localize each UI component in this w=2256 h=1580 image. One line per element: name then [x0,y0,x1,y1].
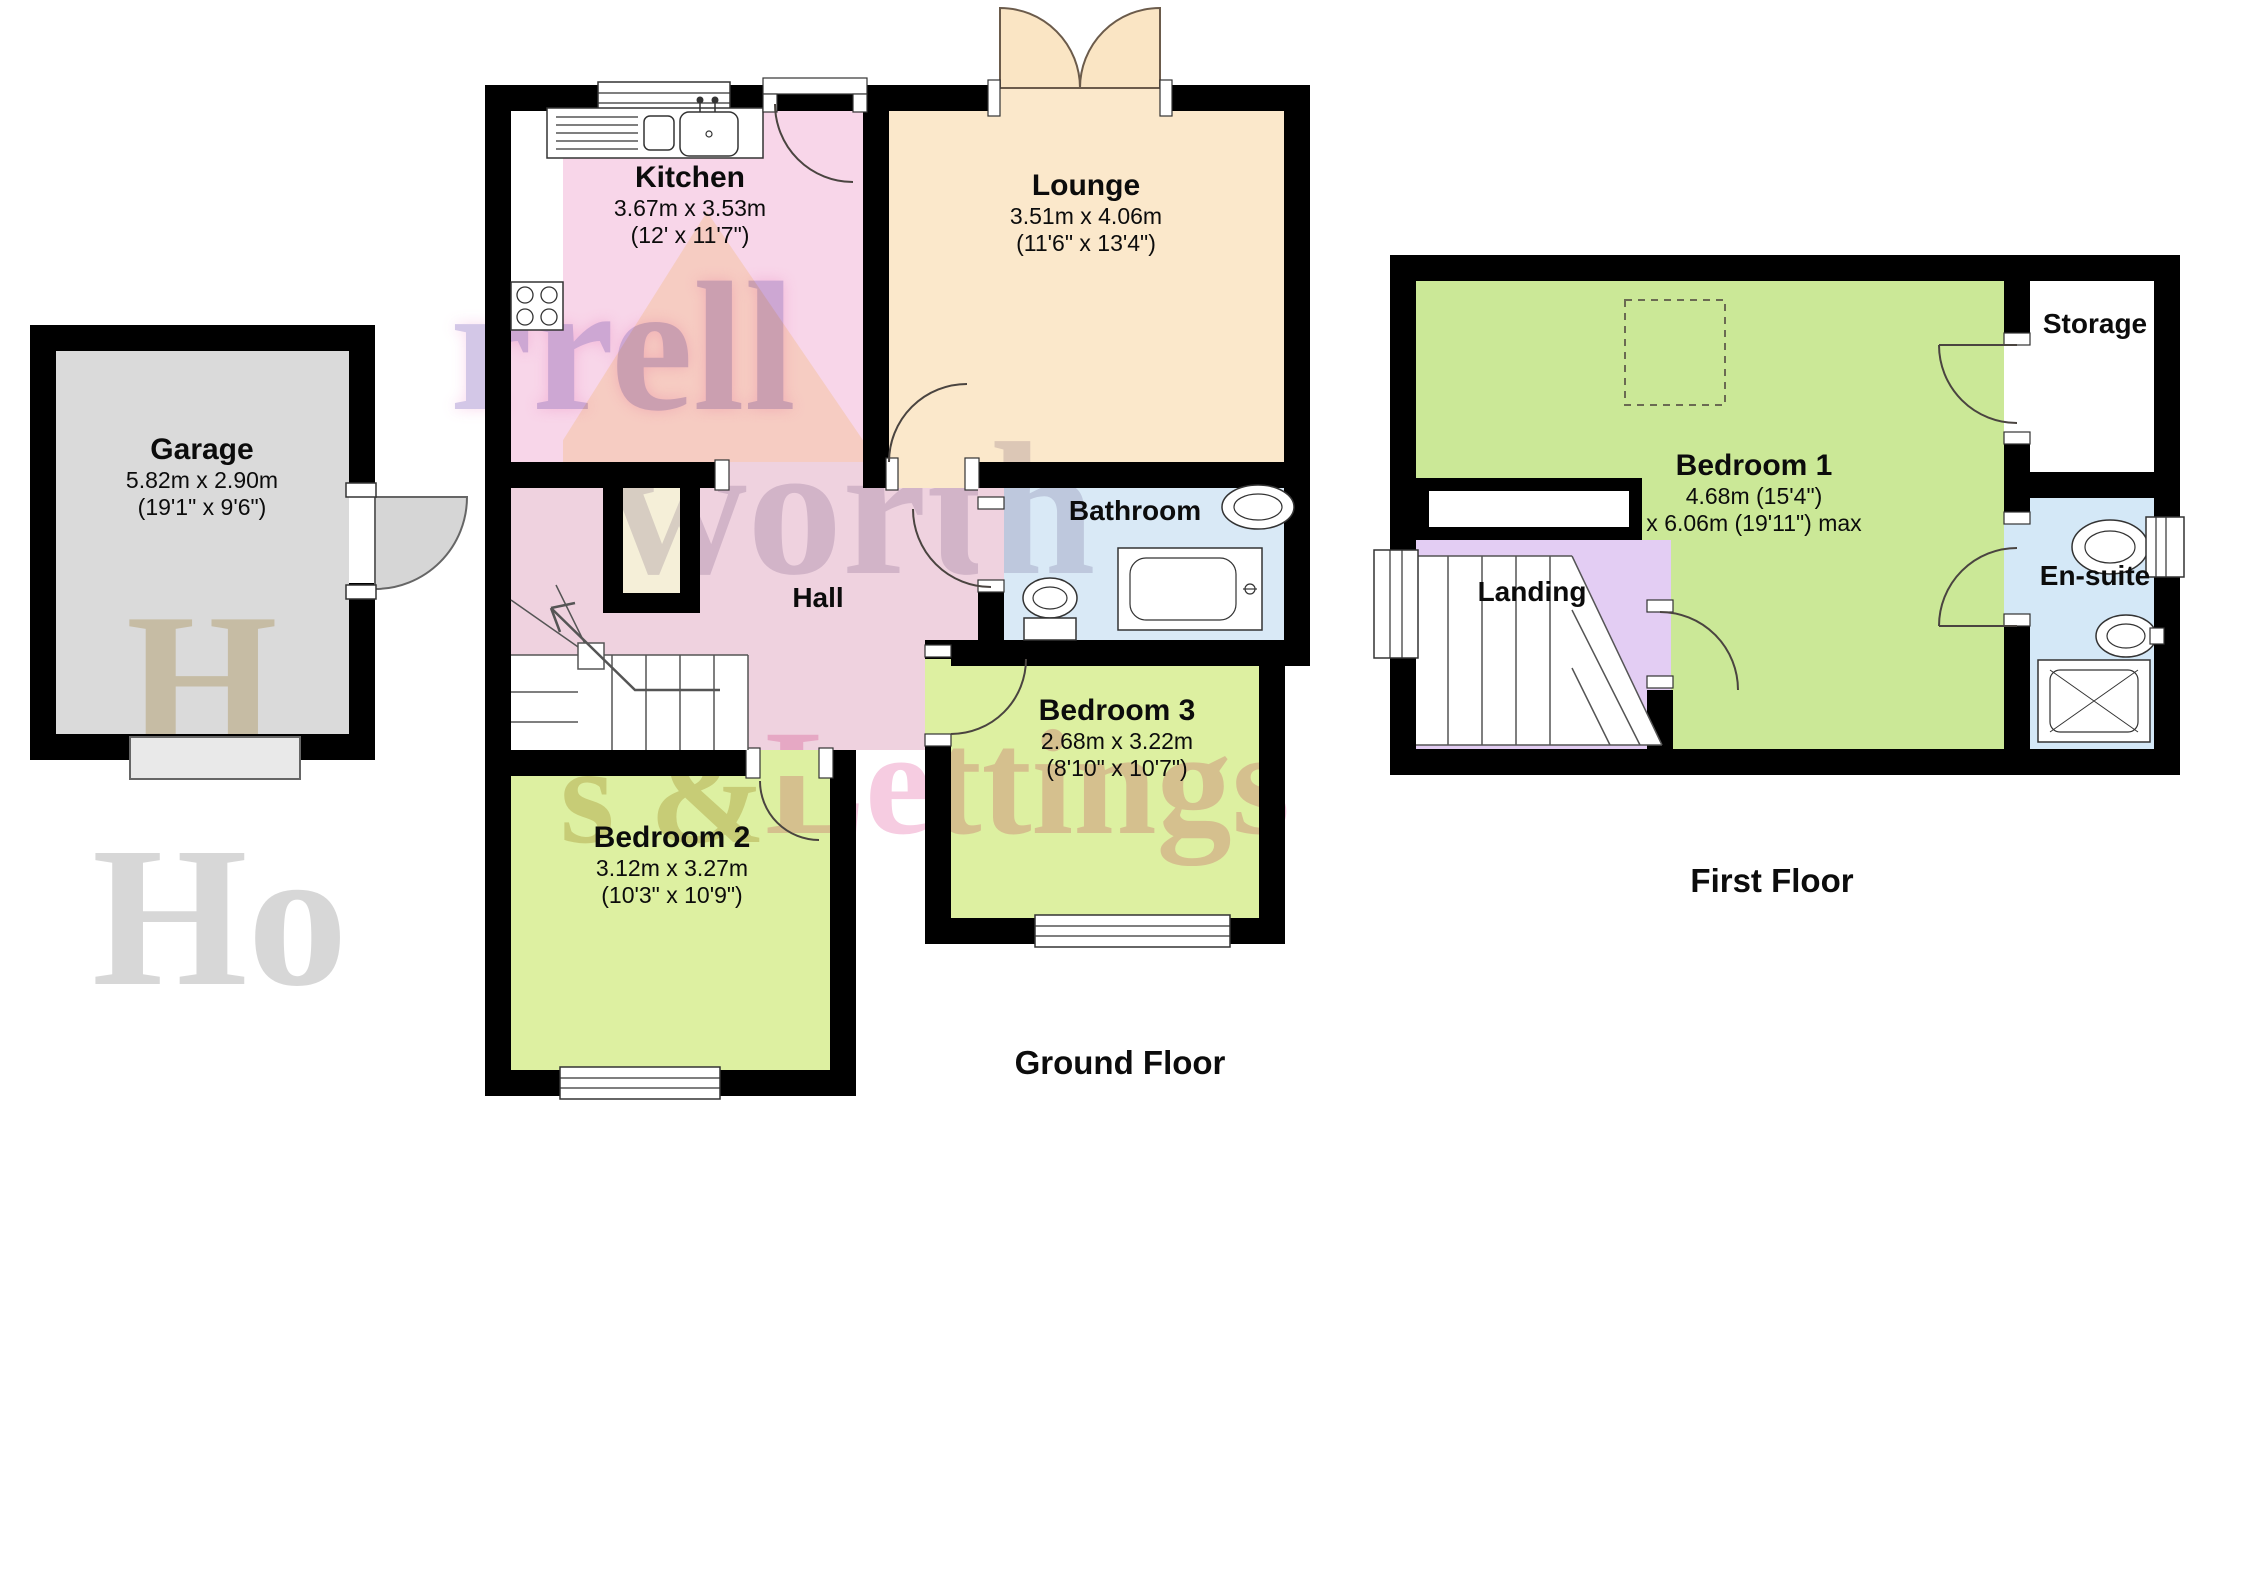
hall-bedroom2-wall [511,750,746,776]
room-dims-metric: 3.51m x 4.06m [1010,203,1162,230]
room-dims-metric: 3.67m x 3.53m [614,195,766,222]
bedroom3-wall [925,918,1285,944]
lounge-bathroom-wall [967,462,1310,488]
garage-wall [30,325,56,760]
kitchen-room [511,330,563,462]
bedroom3-wall [925,640,951,659]
room-name: Storage [2043,308,2147,341]
room-dims-metric: 4.68m (15'4") [1646,483,1861,510]
garage-wall [30,734,375,760]
landing-label: Landing [1478,576,1587,609]
bathroom-hall-wall [978,592,1004,640]
bathroom-label: Bathroom [1069,495,1201,528]
room-dims-imperial: (12' x 11'7") [614,222,766,249]
hall-cupboard-wall [603,593,700,613]
room-dims-metric: 3.12m x 3.27m [594,855,751,882]
first-floor-title: First Floor [1690,862,1853,900]
bedroom1-storage-wall [2004,281,2030,345]
room-name: Bedroom 3 [1039,693,1196,728]
hall-cupboard-interior [623,488,680,593]
firstfloor-wall [1390,749,2180,775]
bedroom3-label: Bedroom 3 2.68m x 3.22m (8'10" x 10'7") [1039,693,1196,782]
ground-floor-title: Ground Floor [1015,1044,1226,1082]
bedroom3-wall [925,734,951,944]
room-name: Landing [1478,576,1587,609]
room-dims-imperial: (19'1" x 9'6") [126,494,278,521]
garage-wall [30,325,375,351]
ensuite-room [2030,498,2154,749]
kitchen-label: Kitchen 3.67m x 3.53m (12' x 11'7") [614,160,766,249]
room-dims-imperial: (11'6" x 13'4") [1010,230,1162,257]
bedroom1-storage-wall [2004,432,2030,512]
room-name: Lounge [1010,168,1162,203]
room-name: Hall [792,582,843,615]
room-name: Bedroom 2 [594,820,751,855]
watermark-text: Ho [92,818,348,1018]
ensuite-label: En-suite [2040,560,2150,593]
room-dims-imperial: (10'3" x 10'9") [594,882,751,909]
bedroom2-wall [485,1070,856,1096]
room-name: En-suite [2040,560,2150,593]
firstfloor-wall [2154,255,2180,775]
storage-ensuite-wall [2030,472,2154,498]
stair-banister [1416,478,1642,540]
room-name: Bedroom 1 [1646,448,1861,483]
bedroom3-wall [1259,640,1285,944]
garage-wall [349,325,375,760]
hall-room [511,488,603,648]
room-name: Bathroom [1069,495,1201,528]
room-name: Garage [126,432,278,467]
kitchen-room [763,111,863,158]
house-wall [485,85,1310,111]
room-dims-imperial: (8'10" x 10'7") [1039,755,1196,782]
lounge-label: Lounge 3.51m x 4.06m (11'6" x 13'4") [1010,168,1162,257]
bedroom1-ensuite-wall [2004,626,2030,749]
hall-label: Hall [792,582,843,615]
room-dims-imperial: x 6.06m (19'11") max [1646,510,1861,537]
landing-bedroom1-wall [1647,690,1673,749]
hall-opening-frame [715,460,729,490]
kitchen-hob [511,282,563,330]
garage-label: Garage 5.82m x 2.90m (19'1" x 9'6") [126,432,278,521]
hall-room [603,613,700,648]
floorplan-canvas: rrell worth s & Lettings H Ho [0,0,2256,1580]
bedroom2-wall [830,750,856,1096]
kitchen-hall-wall [485,462,715,488]
storage-label: Storage [2043,308,2147,341]
garage-room [56,351,349,734]
landing-room [1416,540,1671,749]
room-dims-metric: 2.68m x 3.22m [1039,728,1196,755]
bedroom2-label: Bedroom 2 3.12m x 3.27m (10'3" x 10'9") [594,820,751,909]
room-dims-metric: 5.82m x 2.90m [126,467,278,494]
hall-room [511,648,925,750]
kitchen-lounge-wall [863,111,889,488]
lounge-room [889,111,1284,462]
house-wall [485,85,511,1096]
firstfloor-wall [1390,255,2180,281]
room-name: Kitchen [614,160,766,195]
house-wall [1284,85,1310,666]
bedroom1-label: Bedroom 1 4.68m (15'4") x 6.06m (19'11")… [1646,448,1861,537]
firstfloor-wall [1390,255,1416,775]
bathroom-bedroom3-wall [925,640,1285,666]
hall-room [700,488,978,648]
